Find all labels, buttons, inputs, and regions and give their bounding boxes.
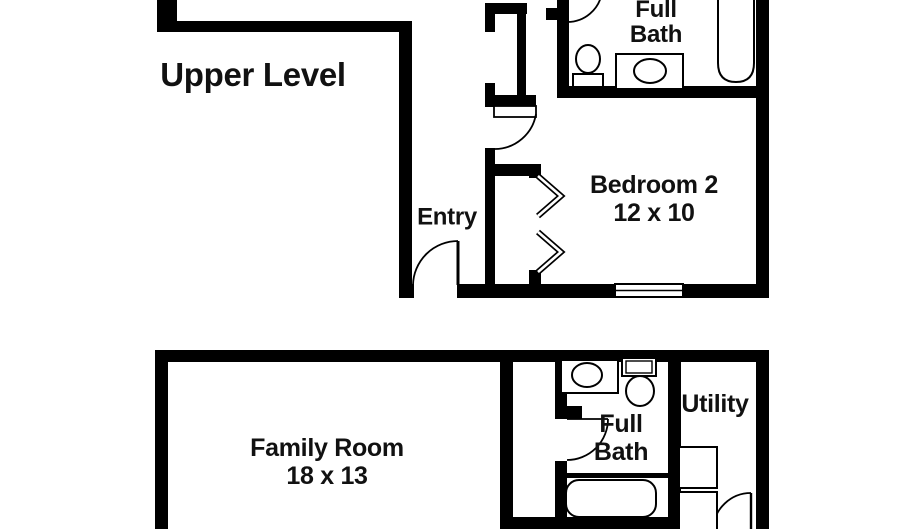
utility-door-swing xyxy=(713,493,751,529)
upper-bath-door-swing xyxy=(567,0,602,22)
entry-door-swing xyxy=(413,241,458,285)
upper-full-bath-label: Full Bath xyxy=(616,0,696,47)
closet-bifold-doors xyxy=(538,176,561,272)
bedroom-2-name: Bedroom 2 xyxy=(590,171,718,199)
lower-level-plan xyxy=(155,350,769,529)
floorplan-drawing xyxy=(0,0,900,529)
bedroom-window xyxy=(615,284,683,297)
toilet-lower xyxy=(622,358,656,406)
bathtub xyxy=(718,0,754,82)
sink-vanity xyxy=(616,54,683,89)
bedroom-2-label: Bedroom 2 12 x 10 xyxy=(590,171,718,227)
bedroom-2-dims: 12 x 10 xyxy=(590,199,718,227)
family-room-dims: 18 x 13 xyxy=(250,462,404,490)
toilet xyxy=(573,45,603,87)
family-room-name: Family Room xyxy=(250,434,404,462)
lower-walls xyxy=(155,350,769,529)
floorplan-image: Upper Level Full Bath Bedroom 2 12 x 10 … xyxy=(0,0,900,529)
bathtub-lower xyxy=(566,480,656,517)
family-room-label: Family Room 18 x 13 xyxy=(250,434,404,490)
bedroom-door-swing xyxy=(494,106,536,149)
utility-appliances xyxy=(679,447,717,529)
lower-full-bath-label: Full Bath xyxy=(581,410,661,466)
sink-vanity-lower xyxy=(561,360,618,393)
entry-label: Entry xyxy=(417,205,477,230)
utility-label: Utility xyxy=(681,390,748,418)
upper-level-title: Upper Level xyxy=(160,57,346,93)
